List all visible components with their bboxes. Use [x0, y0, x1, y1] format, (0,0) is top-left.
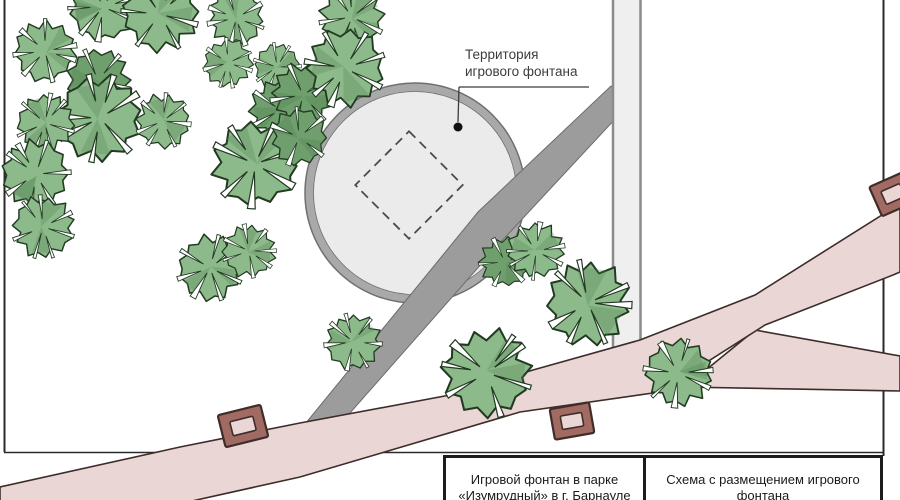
bench-inner: [560, 412, 584, 429]
sheet-title-line2: фонтана: [646, 488, 880, 500]
plan-drawing: [0, 0, 900, 500]
annotation-line1: Территория: [465, 46, 577, 63]
sheet-title-line1: Схема с размещением игрового: [646, 472, 880, 488]
annotation-leader-dot: [454, 123, 463, 132]
title-block: Игровой фонтан в парке «Изумрудный» в г.…: [443, 455, 883, 500]
tree-symbol: [112, 0, 208, 63]
title-block-project-cell: Игровой фонтан в парке «Изумрудный» в г.…: [446, 458, 643, 500]
project-title-line2: «Изумрудный» в г. Барнауле: [446, 488, 643, 500]
annotation-label: Территория игрового фонтана: [465, 46, 577, 80]
site-plan-canvas: Территория игрового фонтана Игровой фонт…: [0, 0, 900, 500]
annotation-line2: игрового фонтана: [465, 63, 577, 80]
tree-symbol: [196, 31, 261, 96]
project-title-line1: Игровой фонтан в парке: [446, 472, 643, 488]
bench-symbol: [550, 402, 595, 439]
tree-canopy: [197, 31, 259, 94]
bench-symbol: [869, 172, 900, 217]
title-block-sheet-cell: Схема с размещением игрового фонтана: [643, 458, 880, 500]
